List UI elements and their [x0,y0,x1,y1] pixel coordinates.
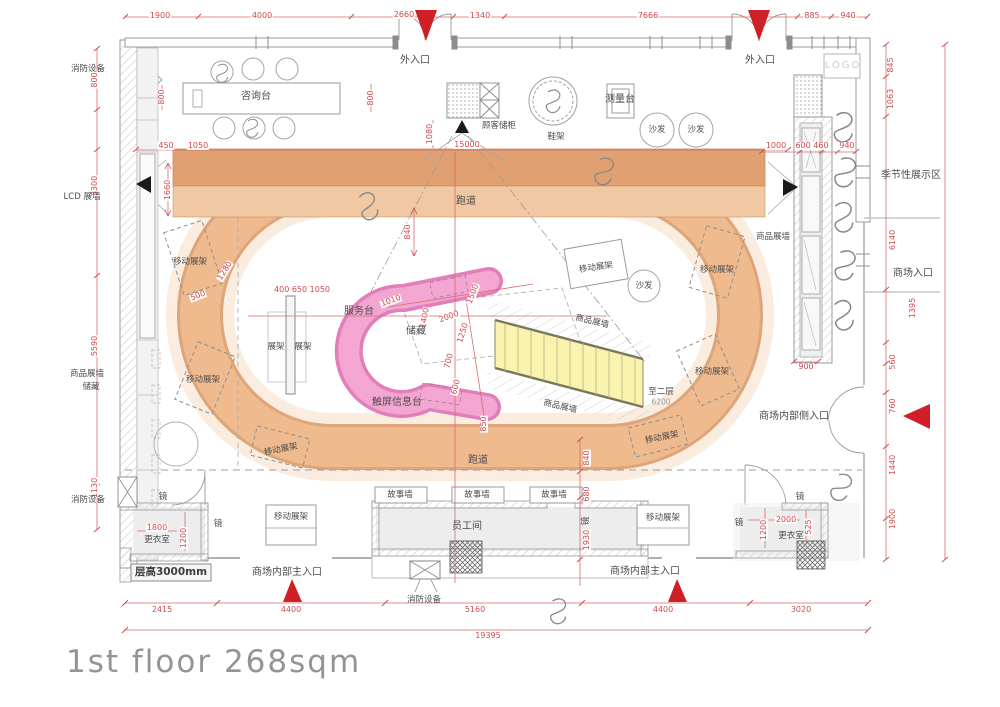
label-ceiling-height: 层高3000mm [135,567,207,578]
dim-label: 1395 [909,297,917,319]
dim-label: 1000 [765,142,787,150]
label-interior-main-entrance: 商场内部主入口 [610,567,680,577]
dim-label: 885 [803,12,820,20]
dim-label: 1900 [889,508,897,530]
label-mirror: 镜 [582,517,591,526]
label-product-wall: 商品展墙 [756,233,790,242]
dim-label: 1930 [583,529,591,551]
dim-label: 3020 [790,606,812,614]
dim-label: 1500 [465,282,480,306]
dim-label: 1063 [887,88,895,110]
label-exterior-entrance: 外入口 [745,56,775,66]
dim-label: 1340 [469,12,491,20]
label-interior-side-entrance: 商场内部侧入口 [759,412,829,422]
dim-label: 800 [91,71,99,88]
label-running-track: 跑道 [456,197,476,207]
dim-label: 19395 [474,632,501,640]
dim-label: 5160 [464,606,486,614]
label-staff-room: 员工间 [452,522,482,532]
logo-box: LOGO [825,61,862,71]
dim-label: 680 [583,485,591,502]
dim-label: 840 [404,223,412,240]
label-story-wall: 故事墙 [464,491,490,500]
label-story-wall: 故事墙 [387,491,413,500]
label-mobile-rack: 移动展架 [646,514,680,523]
dim-label: 1250 [456,321,471,345]
dim-label: 400 650 1050 [273,286,331,294]
dim-label: 1200 [180,527,188,549]
label-fire-equipment: 消防设备 [407,596,441,605]
label-mirror: 镜 [735,519,744,528]
label-sofa: 沙发 [687,126,704,135]
dim-label: 800 [367,89,375,106]
label-mobile-rack: 移动展架 [695,368,729,377]
label-touchscreen-info-desk: 触屏信息台 [372,398,422,408]
dim-label: 1080 [426,123,434,145]
dim-label: 900 [797,363,814,371]
dim-label: 560 [889,353,897,370]
plan-labels-layer: 1900400026601340766688594024154400516044… [0,0,1000,707]
label-mirror: 镜 [796,493,805,502]
dim-label: 2000 [437,309,461,324]
dim-label: 525 [805,518,813,535]
dim-label: 2000 [775,516,797,524]
dim-label: 450 [157,142,174,150]
label-seasonal-display-area: 季节性展示区 [881,171,941,181]
dim-label: 4400 [652,606,674,614]
label-mobile-rack: 移动展架 [186,376,220,385]
label-story-wall: 故事墙 [541,491,567,500]
label-mirror: 镜 [214,520,223,529]
label-storage: 储藏 [82,383,99,392]
label-sofa: 沙发 [635,282,652,291]
label-mobile-rack: 移动展架 [263,442,298,457]
label-mobile-rack: 移动展架 [579,261,614,274]
dim-label: 15000 [453,141,480,149]
dim-label: 1900 [149,12,171,20]
label-customer-lockers: 顾客储柜 [482,122,516,131]
label-mirror: 镜 [159,493,168,502]
label-rack: 展架 [267,343,284,352]
dim-label: 760 [889,397,897,414]
label-sofa: 沙发 [648,126,665,135]
label-fire-equipment: 消防设备 [71,496,105,505]
label-storage: 储藏 [406,327,426,337]
dim-label: 1050 [187,142,209,150]
dim-label: 700 [443,352,455,371]
dim-label: 1280 [216,259,235,282]
label-fire-equipment: 消防设备 [71,65,105,74]
floor-title: 1st floor 268sqm [66,644,361,680]
plan-label: 6200 [651,398,670,406]
label-mall-entrance: 商场入口 [893,269,933,279]
label-consultation-desk: 咨询台 [241,92,271,102]
label-mobile-rack: 移动展架 [173,258,207,267]
dim-label: 2660 [393,11,415,19]
dim-label: 4400 [280,606,302,614]
dim-label: 1200 [760,519,768,541]
label-mobile-rack: 移动展架 [644,430,679,445]
dim-label: 845 [887,56,895,73]
dim-label: 500 [189,289,208,302]
dim-label: 600 [450,378,462,397]
dim-label: 940 [838,142,855,150]
dim-label: 940 [839,12,856,20]
label-product-wall: 商品展墙 [574,314,609,330]
label-product-wall: 商品展墙 [70,370,104,379]
dim-label: 7666 [637,12,659,20]
label-lcd-wall: LCD 展墙 [64,193,101,202]
dim-label: 800 [158,88,166,105]
dim-label: 1010 [379,293,403,308]
label-changing-room: 更衣室 [144,536,170,545]
dim-label: 1800 [146,524,168,532]
dim-label: 4000 [251,12,273,20]
label-product-wall: 商品展墙 [542,399,577,415]
dim-label: 1440 [889,454,897,476]
label-exterior-entrance: 外入口 [400,56,430,66]
label-mobile-rack: 移动展架 [700,266,734,275]
label-changing-room: 更衣室 [778,532,804,541]
label-rack: 展架 [294,343,311,352]
label-interior-main-entrance: 商场内部主入口 [252,568,322,578]
dim-label: 600 460 [794,142,829,150]
dim-label: 840 [583,449,591,466]
dim-label: 2415 [151,606,173,614]
dim-label: 6140 [889,229,897,251]
label-measuring-table: 测量台 [605,95,635,105]
dim-label: 850 [480,415,488,432]
label-running-track: 跑道 [468,456,488,466]
label-shoe-rack: 鞋架 [547,133,564,142]
label-to-second-floor: 至二层 [648,388,674,397]
dim-label: 5590 [91,335,99,357]
dim-label: 1660 [164,179,172,201]
label-mobile-rack: 移动展架 [274,513,308,522]
floor-plan-page: 1900400026601340766688594024154400516044… [0,0,1000,707]
label-service-desk: 服务台 [344,307,374,317]
